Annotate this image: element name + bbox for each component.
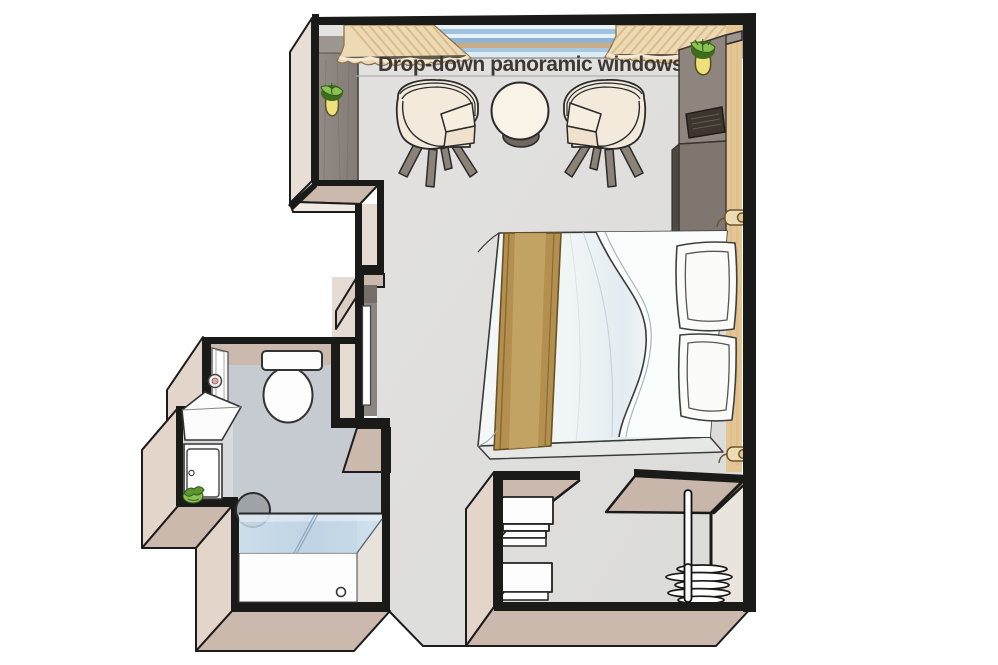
svg-text:Drop-down panoramic windows: Drop-down panoramic windows bbox=[378, 53, 683, 76]
